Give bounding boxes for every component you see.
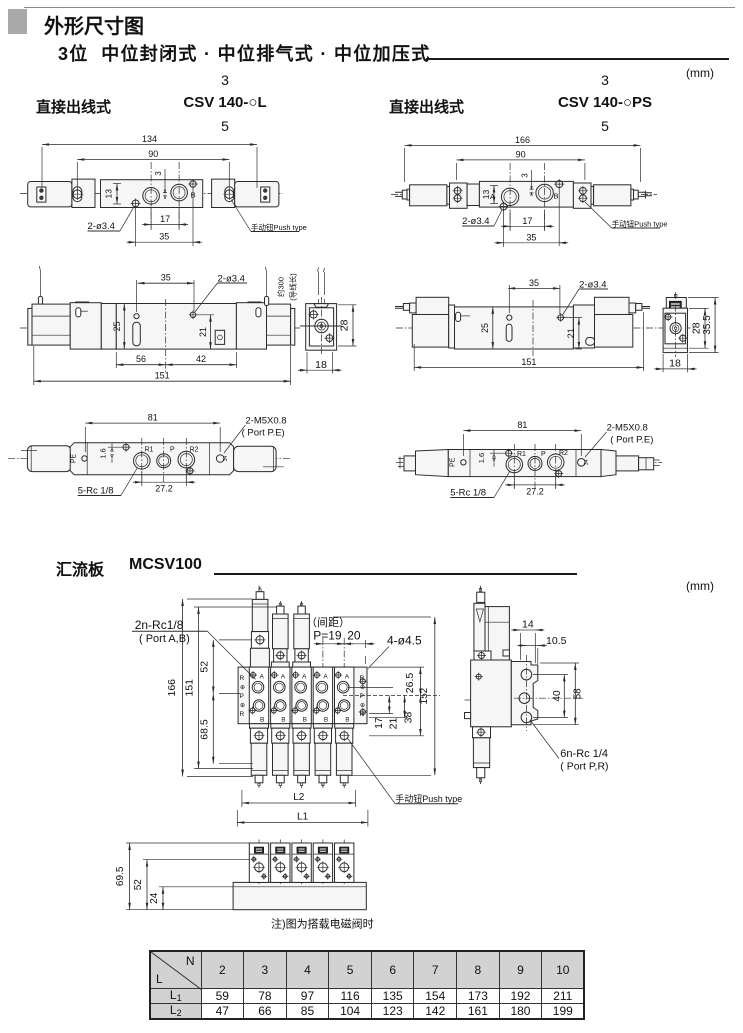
svg-text:PE: PE xyxy=(450,457,457,467)
svg-text:手动钮Push type: 手动钮Push type xyxy=(251,222,307,232)
svg-text:R2: R2 xyxy=(559,450,568,457)
svg-text:24: 24 xyxy=(149,892,160,904)
svg-text:(导线长): (导线长) xyxy=(288,273,298,301)
svg-text:B: B xyxy=(260,717,264,724)
svg-text:20: 20 xyxy=(347,628,361,642)
svg-text:10.5: 10.5 xyxy=(546,635,567,647)
svg-text:2-ø3.4: 2-ø3.4 xyxy=(88,221,115,232)
svg-text:B: B xyxy=(281,717,285,724)
svg-text:17: 17 xyxy=(522,216,532,226)
svg-text:52: 52 xyxy=(133,879,144,891)
svg-text:26.5: 26.5 xyxy=(404,673,416,694)
svg-text:3: 3 xyxy=(520,173,529,178)
svg-text:手动钮Push type: 手动钮Push type xyxy=(395,793,462,804)
svg-text:34: 34 xyxy=(584,459,590,465)
svg-text:35: 35 xyxy=(529,278,539,288)
svg-text:P: P xyxy=(170,447,175,454)
svg-text:90: 90 xyxy=(148,149,158,159)
svg-text:A: A xyxy=(345,674,350,681)
svg-text:R: R xyxy=(240,675,245,682)
svg-text:21: 21 xyxy=(198,327,208,337)
svg-text:2n-Rc1/8: 2n-Rc1/8 xyxy=(135,618,184,632)
svg-text:25: 25 xyxy=(480,323,490,333)
svg-text:B: B xyxy=(324,717,328,724)
svg-text:13: 13 xyxy=(104,189,114,199)
svg-text:P=19: P=19 xyxy=(313,628,342,642)
svg-text:27.2: 27.2 xyxy=(155,484,173,494)
svg-text:（间距）: （间距） xyxy=(306,616,350,629)
svg-text:5-Rc 1/8: 5-Rc 1/8 xyxy=(450,488,486,499)
svg-text:35: 35 xyxy=(526,232,536,242)
svg-text:28: 28 xyxy=(339,319,351,331)
svg-text:17: 17 xyxy=(373,717,385,729)
svg-text:6n-Rc 1/4: 6n-Rc 1/4 xyxy=(560,748,608,760)
svg-text:166: 166 xyxy=(515,135,530,145)
svg-text:1.6: 1.6 xyxy=(477,453,486,463)
svg-text:L1: L1 xyxy=(297,812,309,823)
svg-text:35: 35 xyxy=(161,273,171,283)
svg-text:⊕: ⊕ xyxy=(240,685,245,691)
svg-text:38: 38 xyxy=(403,712,415,724)
svg-text:18: 18 xyxy=(669,358,681,370)
svg-text:B: B xyxy=(554,192,559,201)
svg-text:⊕: ⊕ xyxy=(240,703,245,709)
svg-text:( Port P,R): ( Port P,R) xyxy=(560,761,608,773)
svg-text:R: R xyxy=(240,711,245,718)
svg-text:151: 151 xyxy=(184,679,196,697)
svg-text:R1: R1 xyxy=(517,451,526,458)
svg-text:( Port A,B): ( Port A,B) xyxy=(139,633,190,645)
svg-text:( Port P.E): ( Port P.E) xyxy=(610,435,653,446)
svg-text:25: 25 xyxy=(112,321,122,331)
svg-text:27.2: 27.2 xyxy=(526,486,544,496)
svg-text:2-M5X0.8: 2-M5X0.8 xyxy=(245,416,286,427)
svg-text:B: B xyxy=(345,717,349,724)
svg-text:⊕: ⊕ xyxy=(360,685,365,691)
svg-text:40: 40 xyxy=(552,690,563,702)
svg-text:手动钮Push type: 手动钮Push type xyxy=(612,219,668,229)
svg-text:2-M5X0.8: 2-M5X0.8 xyxy=(607,423,648,434)
svg-text:A: A xyxy=(490,192,495,201)
svg-text:3: 3 xyxy=(154,171,163,176)
svg-text:134: 134 xyxy=(142,134,157,144)
svg-text:68.5: 68.5 xyxy=(198,719,210,740)
svg-text:69.5: 69.5 xyxy=(115,866,126,886)
svg-text:约300: 约300 xyxy=(276,277,286,297)
svg-text:A: A xyxy=(323,674,328,681)
svg-text:56: 56 xyxy=(136,354,146,364)
svg-text:151: 151 xyxy=(155,371,170,381)
svg-text:35.5: 35.5 xyxy=(702,315,713,335)
svg-text:P: P xyxy=(541,451,546,458)
svg-text:L2: L2 xyxy=(293,792,305,803)
svg-text:90: 90 xyxy=(516,149,526,159)
svg-text:R1: R1 xyxy=(145,447,154,454)
svg-text:52: 52 xyxy=(198,661,210,673)
svg-text:81: 81 xyxy=(517,420,527,430)
svg-text:B: B xyxy=(303,717,307,724)
svg-text:34: 34 xyxy=(223,456,229,462)
svg-text:( Port P.E): ( Port P.E) xyxy=(242,428,285,439)
svg-text:4-ø4.5: 4-ø4.5 xyxy=(387,634,422,648)
svg-text:注)图为搭载电磁阀时: 注)图为搭载电磁阀时 xyxy=(271,917,374,931)
svg-text:21: 21 xyxy=(566,328,576,338)
svg-text:1.6: 1.6 xyxy=(99,448,108,458)
svg-text:81: 81 xyxy=(148,413,158,423)
svg-text:P: P xyxy=(360,693,364,700)
svg-text:5-Rc 1/8: 5-Rc 1/8 xyxy=(78,486,114,497)
svg-text:17: 17 xyxy=(160,214,170,224)
svg-text:28: 28 xyxy=(691,322,703,334)
svg-text:2-ø3.4: 2-ø3.4 xyxy=(462,216,489,227)
svg-text:A: A xyxy=(302,674,307,681)
svg-text:58: 58 xyxy=(573,688,584,700)
svg-text:42: 42 xyxy=(196,354,206,364)
svg-text:151: 151 xyxy=(521,357,536,367)
svg-text:21: 21 xyxy=(388,718,400,730)
svg-text:14: 14 xyxy=(522,618,534,630)
svg-text:35: 35 xyxy=(159,232,169,242)
svg-text:166: 166 xyxy=(166,679,178,697)
svg-text:18: 18 xyxy=(315,359,327,371)
svg-text:P: P xyxy=(240,693,244,700)
svg-text:A: A xyxy=(281,674,286,681)
svg-text:A: A xyxy=(260,674,265,681)
svg-text:R2: R2 xyxy=(190,447,199,454)
svg-text:PE: PE xyxy=(71,454,78,464)
